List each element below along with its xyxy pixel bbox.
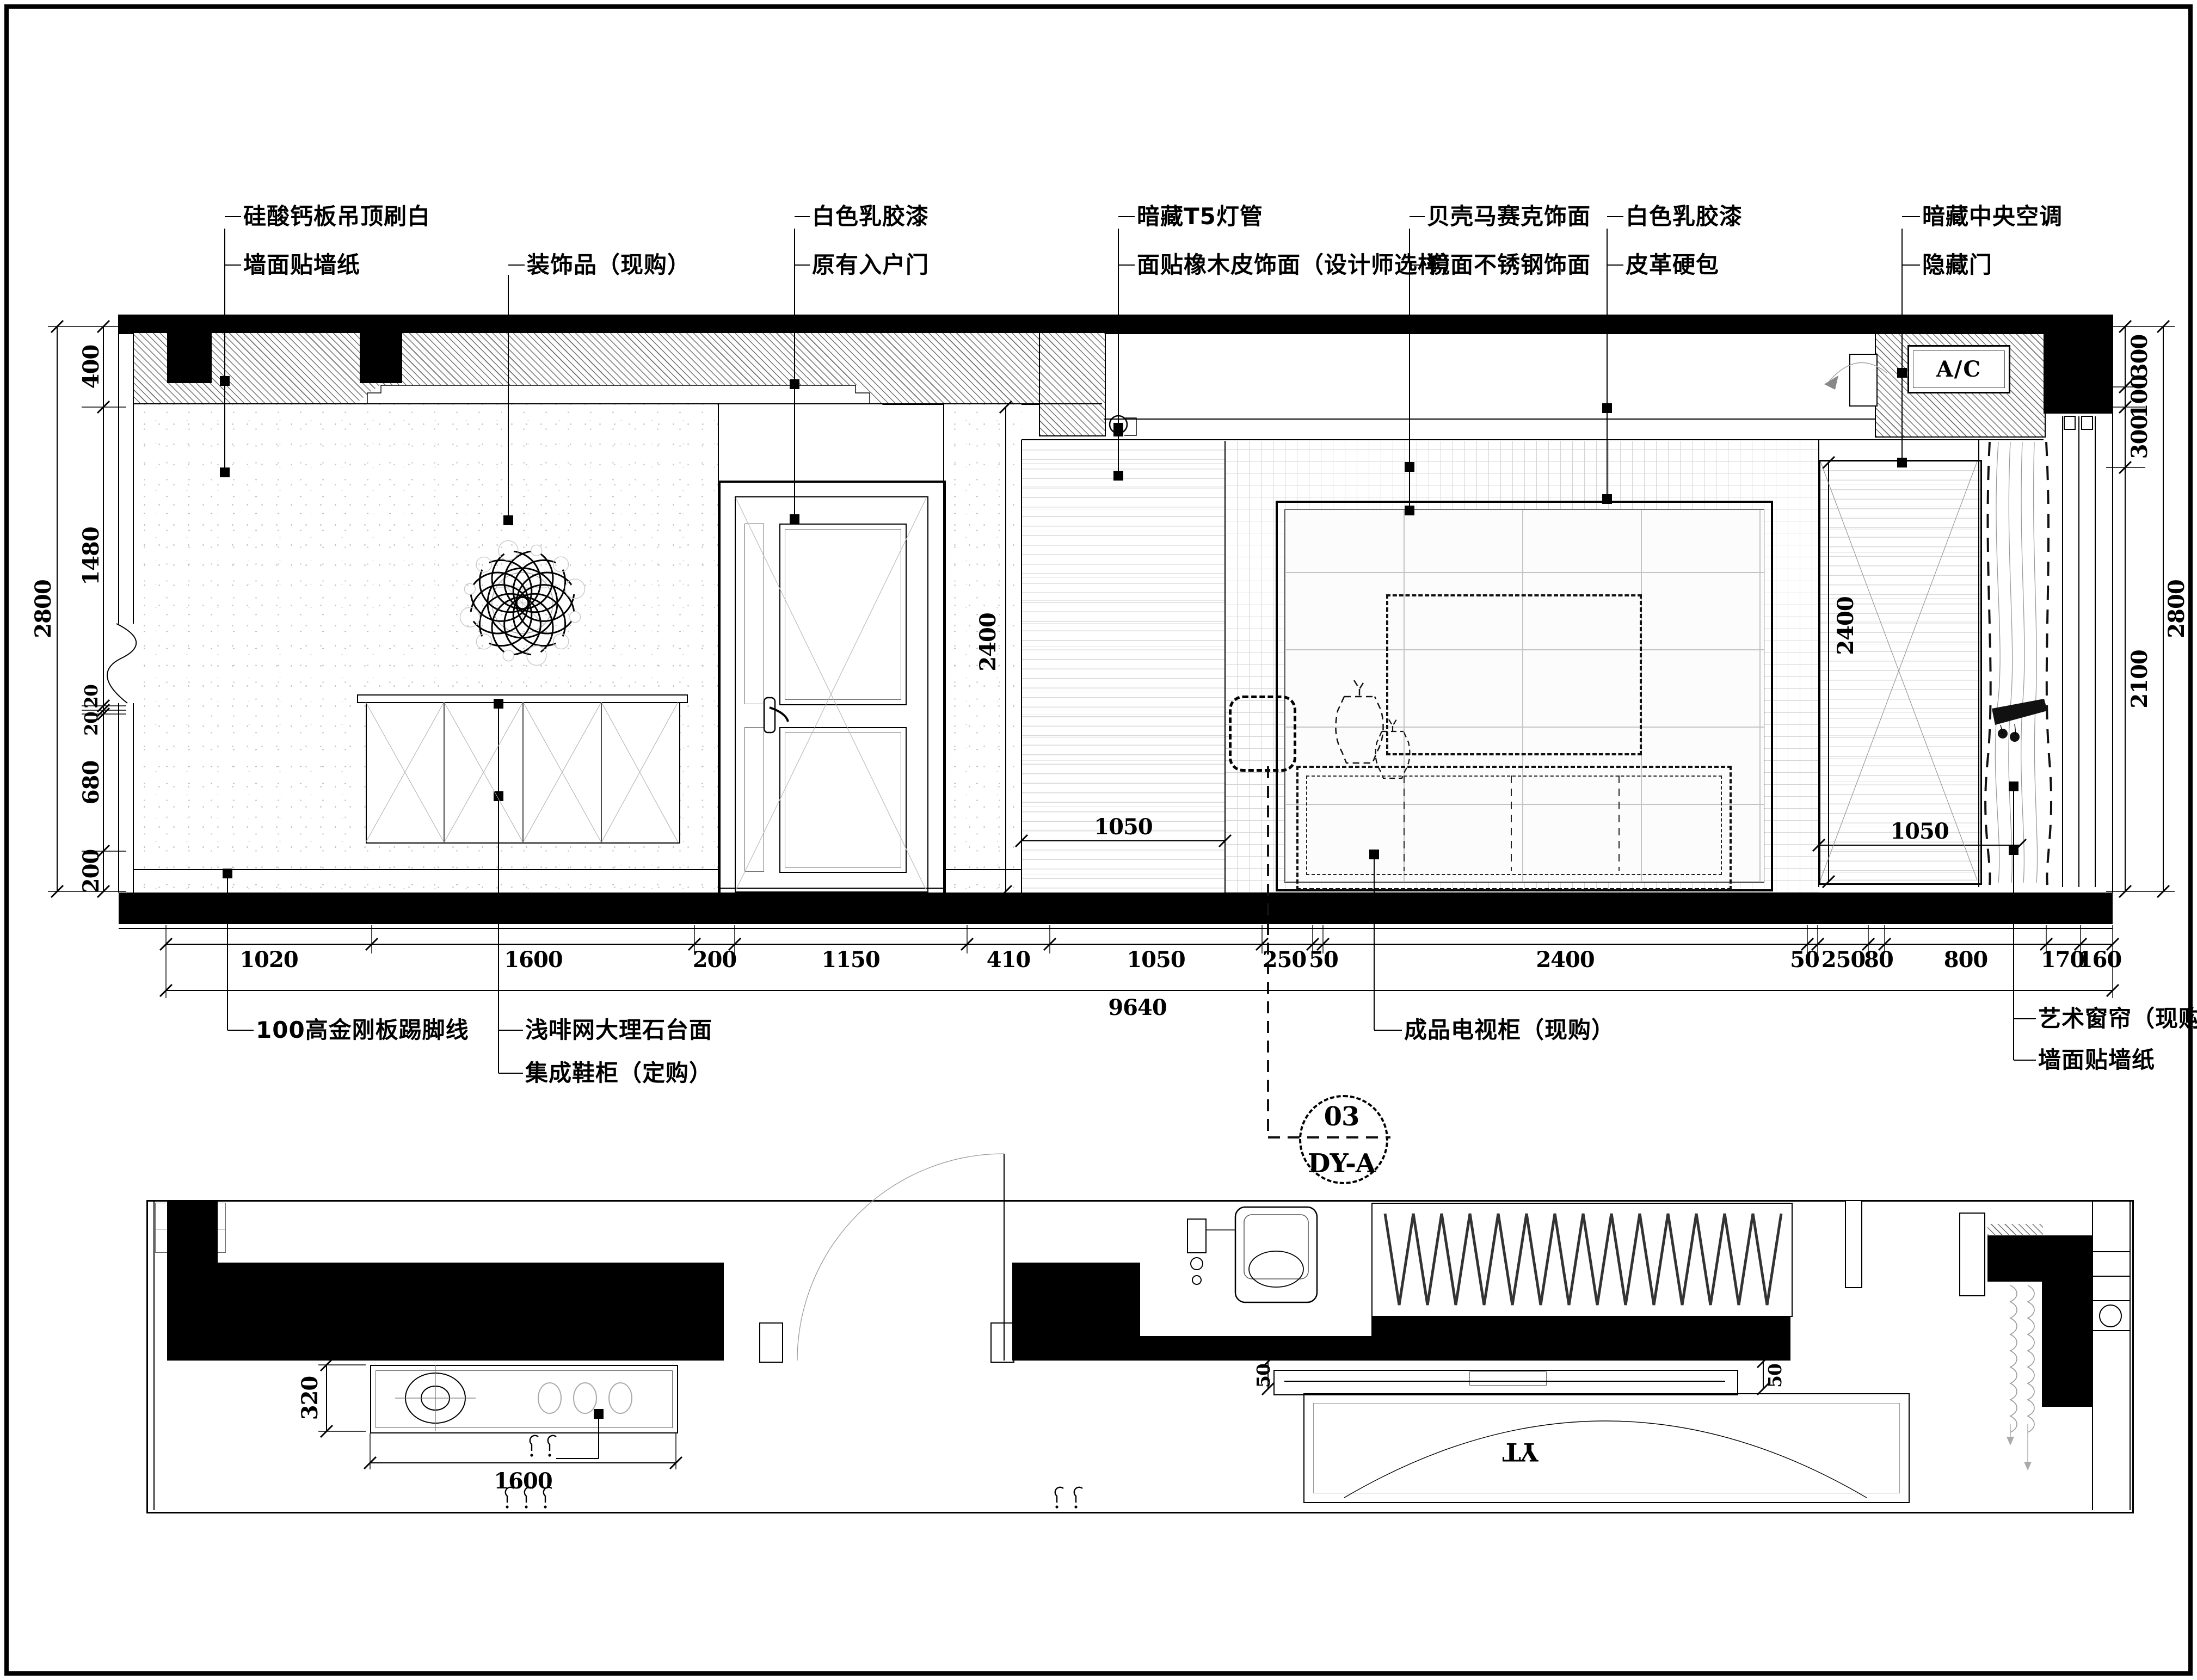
label-central-ac: 暗藏中央空调: [1922, 204, 2063, 230]
label-leather-pad: 皮革硬包: [1626, 252, 1719, 278]
dim-680: 680: [79, 761, 103, 805]
label-t5-lamp: 暗藏T5灯管: [1137, 204, 1263, 230]
tv-console-inner: [1306, 776, 1722, 875]
label-wallpaper-r: 墙面贴墙纸: [2038, 1047, 2155, 1073]
column-right: [2044, 315, 2113, 414]
ac-unit-inner: [1913, 350, 2005, 388]
plan-door-jamb-right: [990, 1322, 1014, 1363]
dim-80: 80: [1864, 948, 1893, 972]
dim-1600: 1600: [504, 948, 562, 972]
plan-tv-zone-inner: [1313, 1403, 1900, 1493]
dim-2800-r: 2800: [2165, 580, 2189, 638]
ac-unit: A/C: [1907, 345, 2010, 393]
dim-1050: 1050: [1127, 948, 1185, 972]
dim-2800-l: 2800: [32, 580, 56, 638]
plan-yt-label: YT: [1503, 1440, 1538, 1464]
light-cove-pocket: [1039, 333, 1106, 436]
door-panel-bottom: [779, 727, 907, 873]
ceiling-beam-drop-1: [167, 333, 212, 383]
dim-250a: 250: [1263, 948, 1307, 972]
label-shell-mosaic: 贝壳马赛克饰面: [1427, 204, 1591, 230]
label-wallpaper: 墙面贴墙纸: [243, 252, 360, 278]
label-mirror-steel: 镜面不锈钢饰面: [1427, 252, 1591, 278]
plan-jamb-hidden-door-2: [1959, 1213, 1985, 1296]
dim-panel-r-1050: 1050: [1890, 820, 1948, 844]
dim-panel-l-2400: 2400: [976, 613, 1000, 671]
curtain-box: [1849, 354, 1878, 407]
dim-20a: 20: [79, 685, 103, 709]
door-panel-bottom-inner: [785, 733, 901, 867]
dim-300a: 300: [2128, 335, 2152, 379]
dim-2100: 2100: [2128, 650, 2152, 708]
plan-door-jamb-left: [759, 1322, 783, 1363]
door-panel-top-inner: [785, 529, 901, 700]
dim-1020: 1020: [239, 948, 298, 972]
plan-tv-console-notch: [1469, 1371, 1547, 1386]
callout-code: DY-A: [1308, 1152, 1375, 1176]
dim-50a: 50: [1309, 948, 1338, 972]
plan-tv-zone: [1303, 1393, 1910, 1503]
dim-panel-l-1050: 1050: [1094, 815, 1152, 839]
plan-wall-c: [1371, 1317, 1790, 1361]
plan-wall-under-wc: [1140, 1336, 1371, 1361]
label-oak-veneer: 面贴橡木皮饰面（设计师选样）: [1137, 252, 1464, 278]
dim-20b: 20: [79, 712, 103, 736]
dim-250b: 250: [1821, 948, 1866, 972]
label-ceiling-board: 硅酸钙板吊顶刷白: [243, 204, 430, 230]
dim-200l: 200: [79, 850, 103, 894]
label-shoe-cabinet: 集成鞋柜（定购）: [525, 1060, 712, 1086]
floor-slab: [119, 893, 2113, 924]
shoe-cabinet: [366, 702, 680, 844]
plan-console: [370, 1365, 678, 1433]
plan-mosaic-zigzag-band: [1371, 1203, 1793, 1317]
ceiling-slab: [119, 315, 2113, 334]
section-cut-marker: [1229, 696, 1296, 772]
dim-800: 800: [1944, 948, 1988, 972]
door-stile-panel-bottom: [744, 727, 764, 872]
dim-100: 100: [2128, 375, 2152, 419]
label-marble-top: 浅啡网大理石台面: [525, 1017, 712, 1043]
dim-200: 200: [693, 948, 737, 972]
dim-1150: 1150: [821, 948, 879, 972]
label-decor: 装饰品（现购）: [527, 252, 691, 278]
dim-plan-1600: 1600: [494, 1469, 552, 1493]
tv-dashed: [1386, 594, 1642, 755]
label-white-paint-l: 白色乳胶漆: [812, 204, 929, 230]
dim-plan-50r: 50: [1763, 1364, 1787, 1388]
door-panel-top: [779, 524, 907, 705]
dim-410: 410: [987, 948, 1031, 972]
label-entry-door: 原有入户门: [812, 252, 929, 278]
dim-panel-r-2400: 2400: [1834, 596, 1858, 655]
label-tv-cabinet: 成品电视柜（现购）: [1404, 1017, 1615, 1043]
callout-number: 03: [1324, 1105, 1359, 1129]
cornice-step: [354, 382, 883, 405]
plan-hatch-sliver: [1987, 1224, 2043, 1235]
dim-plan-50l: 50: [1252, 1364, 1276, 1388]
dim-400: 400: [79, 345, 103, 389]
plan-wall-L-vertical: [2042, 1235, 2093, 1407]
plan-jamb-hidden-door-1: [1845, 1200, 1862, 1288]
plan-console-inner: [376, 1370, 673, 1428]
dim-300b: 300: [2128, 415, 2152, 459]
label-art-curtain: 艺术窗帘（现购）: [2038, 1006, 2197, 1032]
ceiling-beam-drop-2: [360, 333, 402, 383]
dim-2400: 2400: [1536, 948, 1594, 972]
dim-160: 160: [2078, 948, 2122, 972]
dim-plan-320: 320: [298, 1376, 322, 1420]
tv-console-dashed: [1296, 766, 1732, 890]
dim-1480: 1480: [79, 527, 103, 585]
dim-50b: 50: [1790, 948, 1819, 972]
plan-wall-a: [167, 1263, 724, 1361]
label-white-paint-r: 白色乳胶漆: [1626, 204, 1743, 230]
plan-wall-b: [1012, 1263, 1140, 1361]
label-hidden-door: 隐藏门: [1922, 252, 1992, 278]
dim-total-9640: 9640: [1108, 996, 1166, 1020]
drawing-sheet: A/C 03 DY-A: [0, 0, 2197, 1680]
door-stile-panel-top: [744, 524, 764, 704]
label-skirting: 100高金刚板踢脚线: [256, 1017, 469, 1043]
